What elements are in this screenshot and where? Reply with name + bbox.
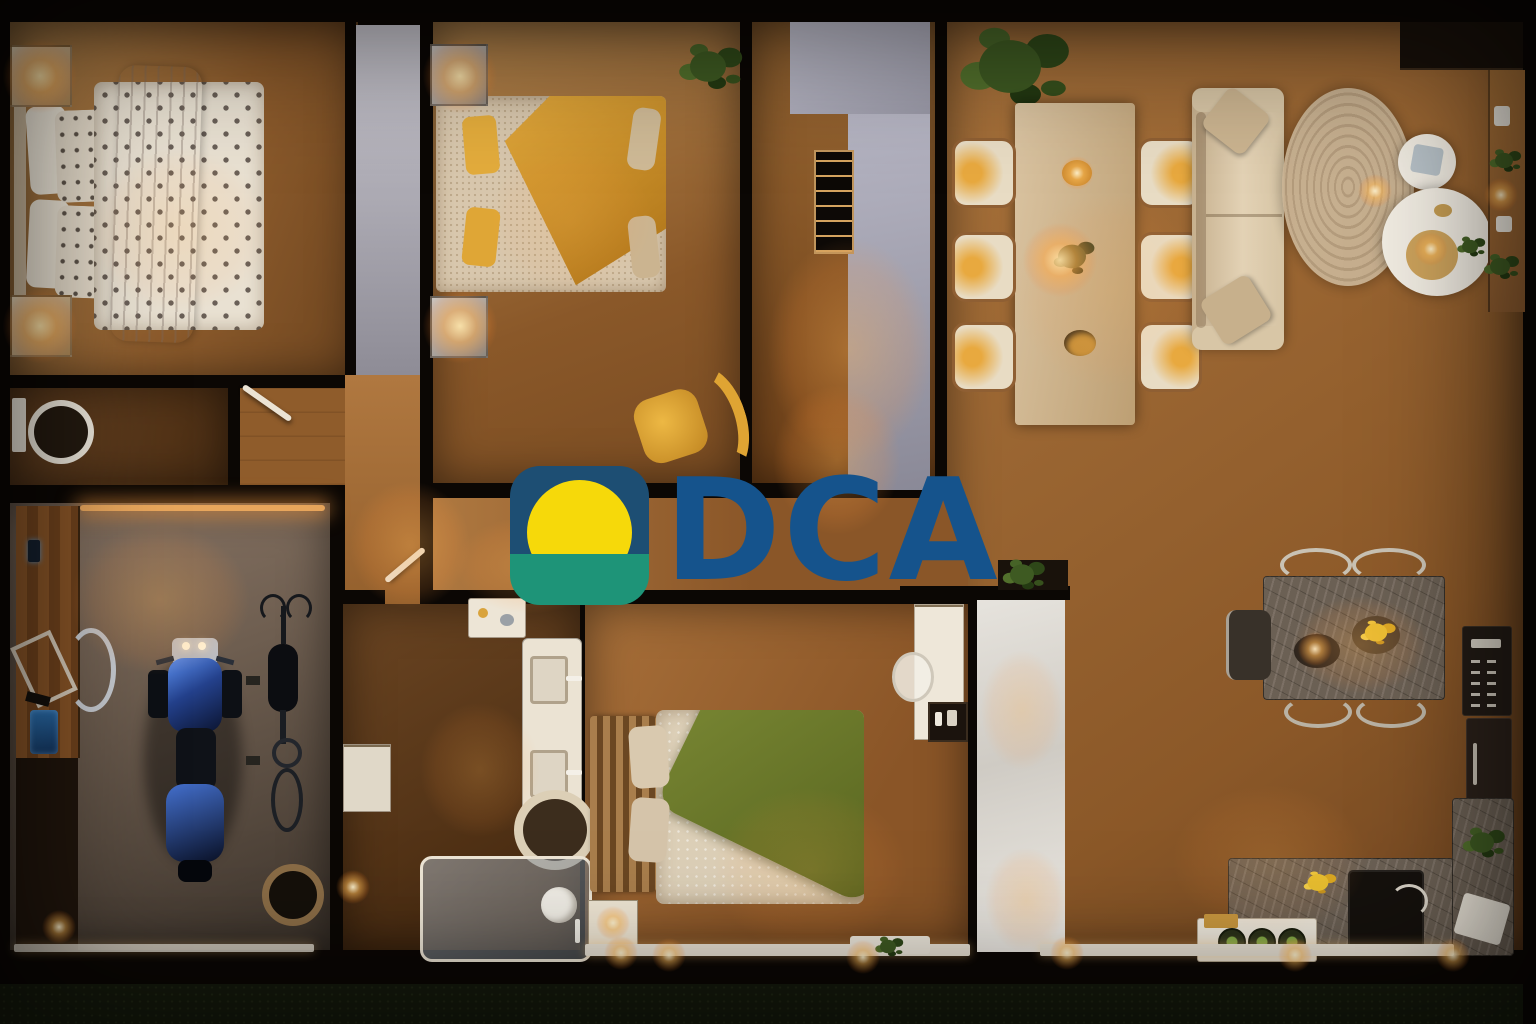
garage-light-strip — [80, 505, 325, 511]
bike-wheel — [271, 768, 303, 832]
nightstand — [430, 296, 488, 358]
pannier — [220, 670, 242, 718]
gold-faucet-dot — [478, 608, 488, 618]
coffee-machine — [1462, 626, 1512, 716]
mirror-tray — [1410, 144, 1444, 177]
wall-bed1-bottom — [0, 375, 345, 388]
storage-cubby — [928, 702, 968, 742]
sink-basin — [530, 656, 568, 704]
pillow-yellow — [462, 115, 501, 176]
potted-plant-dining — [979, 40, 1041, 93]
button-column — [1487, 655, 1496, 707]
console-item-white — [1494, 106, 1510, 126]
wall-hall-right — [935, 22, 947, 490]
console-plant — [1490, 258, 1510, 275]
yellow-fruit — [1365, 623, 1387, 641]
wall-control-device — [28, 540, 40, 562]
door-pull-handle — [66, 628, 116, 712]
wall-bed1-bed2 — [345, 22, 356, 375]
oven-handle — [1473, 743, 1477, 785]
bike-stem — [281, 606, 286, 644]
planter-greens — [880, 940, 896, 954]
bicycle — [246, 588, 320, 832]
wardrobe-glow — [967, 630, 1077, 790]
bed-double-bedroom-2 — [436, 96, 666, 292]
recycle-bin-blue — [30, 710, 58, 754]
wardrobe-panel — [977, 600, 1065, 952]
nightstand — [10, 45, 72, 107]
sofa-cushion-divider — [1206, 214, 1282, 217]
shower-enclosure — [420, 856, 592, 962]
headlight — [182, 642, 190, 650]
cubby-item — [947, 710, 957, 726]
plant-on-wall — [1010, 564, 1034, 584]
console-plant — [1495, 153, 1513, 168]
yellow-flowers-counter — [1308, 874, 1329, 891]
dining-chair — [952, 138, 1016, 208]
bed-double-bedroom-3 — [656, 710, 864, 904]
handlebar — [286, 594, 312, 622]
wall-hook — [246, 756, 260, 765]
soap-dish — [500, 614, 514, 626]
closet-panel-bedroom-1 — [356, 25, 420, 375]
charger-plate — [1406, 230, 1458, 280]
nightstand — [10, 295, 72, 357]
logo-sunrise-icon — [510, 466, 649, 605]
fruit-bowl — [1064, 330, 1096, 356]
small-bowl — [1434, 204, 1452, 217]
pillow — [628, 725, 670, 789]
dining-chair — [952, 232, 1016, 302]
blanket-gray — [109, 65, 203, 344]
rear-cowl-blue — [166, 784, 224, 862]
terrace-sill — [1040, 944, 1454, 956]
wall-bathroom-top-left — [343, 590, 385, 604]
desk-stool — [892, 652, 934, 702]
shoe-rack — [814, 150, 854, 254]
sofa-backrest-edge — [1196, 112, 1206, 328]
logo-wordmark: DCA — [664, 458, 1004, 604]
gold-box — [1204, 914, 1238, 928]
shower-drain-plate — [541, 887, 577, 923]
console-item-white — [1496, 216, 1512, 232]
rear-wheel — [178, 860, 212, 882]
button-column — [1471, 655, 1480, 707]
bar-chair-bottom — [1356, 696, 1426, 728]
potted-plant-bedroom-2 — [690, 51, 726, 82]
wall-top — [0, 0, 1536, 22]
partition-wall-vertical — [848, 114, 930, 490]
toilet-bowl — [28, 400, 94, 464]
crankset — [272, 738, 302, 768]
machine-display — [1471, 639, 1501, 648]
dining-chair — [952, 322, 1016, 392]
floor-plan-render: DCA — [0, 0, 1536, 1024]
fuel-tank-blue — [168, 658, 222, 732]
mini-plant-table — [1462, 240, 1478, 254]
wall-toilet-right — [228, 385, 240, 437]
cubby-item — [935, 712, 942, 726]
wall-garage-right — [330, 503, 343, 952]
toilet-cistern — [12, 398, 26, 452]
oven-appliance — [1466, 718, 1512, 804]
sink-faucet — [1390, 884, 1428, 918]
candle-dish — [1062, 160, 1092, 186]
seat — [176, 728, 216, 790]
pillow — [628, 797, 670, 863]
pannier — [148, 670, 170, 718]
blanket-green — [656, 710, 864, 904]
garage-sill — [14, 944, 314, 952]
bathroom-cabinet — [343, 744, 391, 812]
shower-handle — [575, 919, 580, 943]
faucet — [566, 770, 582, 775]
floor-corridor-right-of-toilet — [240, 385, 345, 485]
bike-saddle — [268, 644, 298, 712]
bar-chair-top — [1280, 548, 1352, 582]
sideboard-top-right — [1400, 22, 1523, 70]
motorcycle — [138, 628, 250, 880]
partition-wall-horizontal — [790, 22, 930, 114]
pillow-yellow — [461, 206, 501, 267]
garage-dark-lower-panel — [16, 758, 78, 950]
wall-garage-top — [0, 485, 345, 503]
storage-basket — [262, 864, 324, 926]
grass-lawn — [0, 984, 1536, 1024]
counter-plant — [1470, 832, 1494, 852]
candle-plate-island — [1294, 634, 1340, 668]
island-chair-left — [1226, 610, 1271, 680]
wall-wardrobe-strip — [968, 600, 977, 952]
floor-corridor-mid — [345, 375, 420, 604]
wall-hook — [246, 676, 260, 685]
headlight — [198, 642, 206, 650]
bar-chair-top — [1352, 548, 1426, 582]
nightstand — [430, 44, 488, 106]
dried-sprig-centerpiece — [1058, 245, 1086, 269]
logo-sea-green — [510, 554, 649, 605]
faucet — [566, 676, 582, 681]
bar-chair-bottom — [1284, 696, 1352, 728]
